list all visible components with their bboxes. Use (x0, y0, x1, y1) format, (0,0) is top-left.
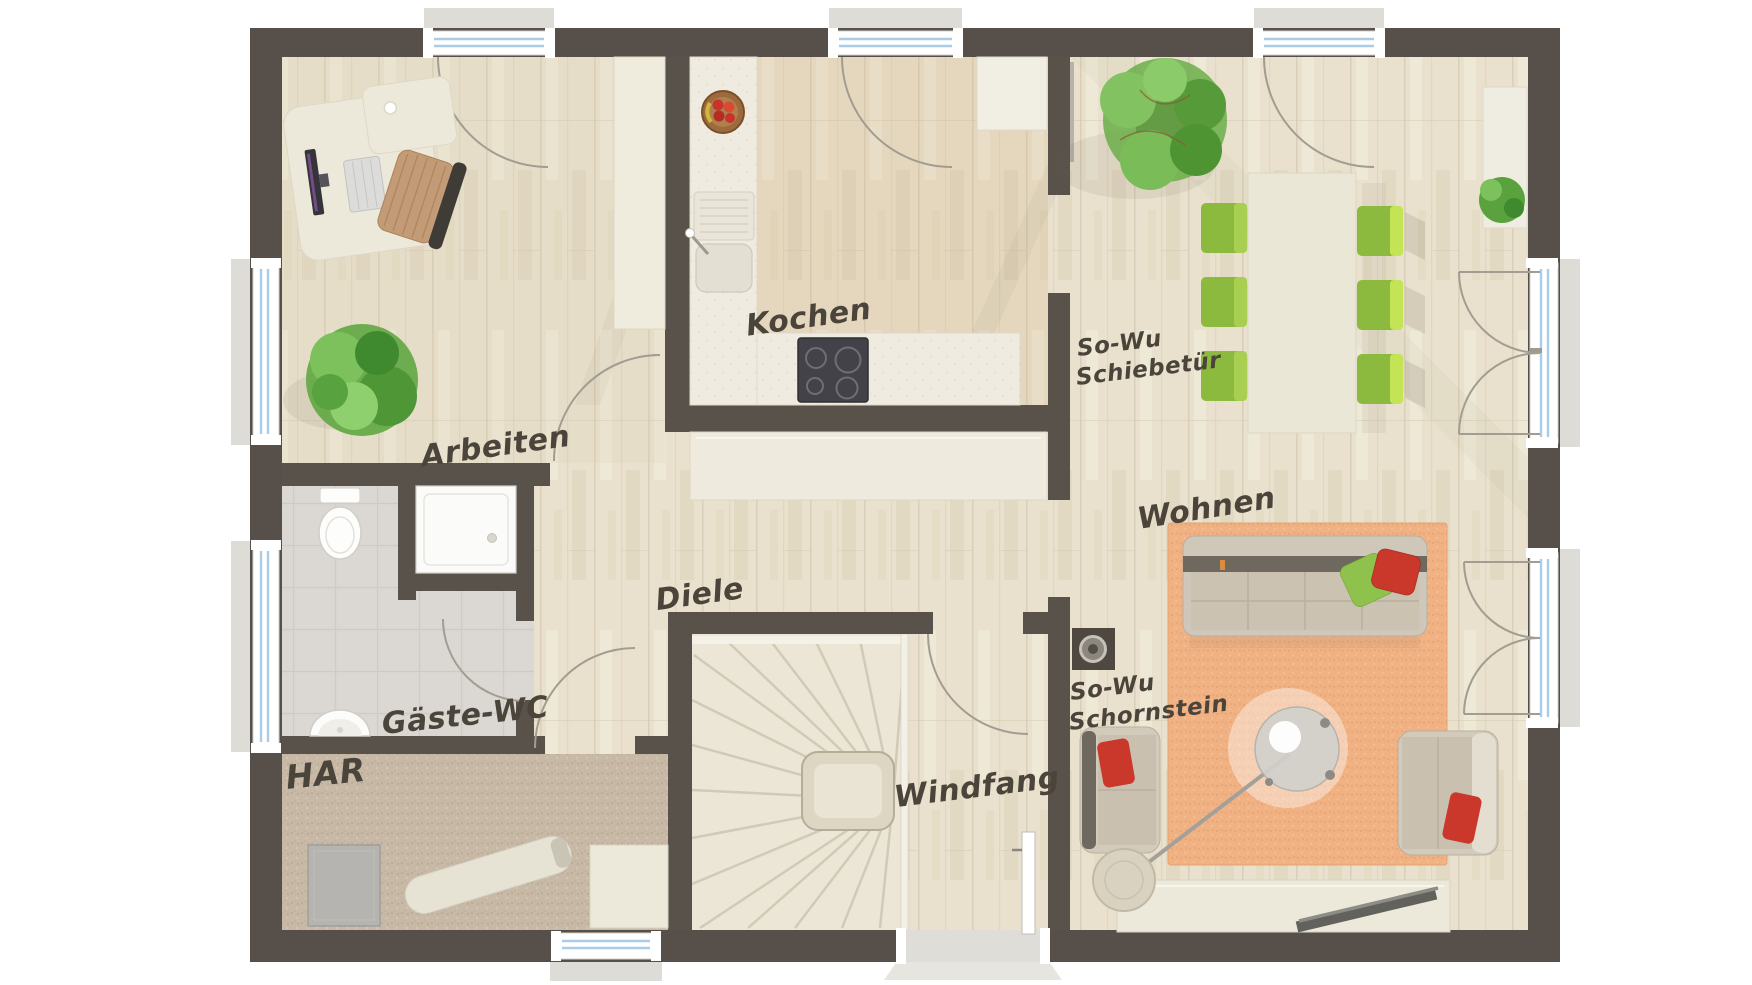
window-office-west (251, 258, 281, 445)
wall-stair-west (668, 634, 692, 930)
wall-shower-south (416, 573, 534, 591)
sofa (1183, 536, 1427, 636)
wall-shower-west (398, 463, 416, 600)
floor-plan-page: Arbeiten Kochen Diele Gäste-WC HAR Windf… (0, 0, 1752, 985)
entrance-step (884, 960, 1062, 980)
tv-lowboard (1117, 880, 1450, 932)
dining-chairs-right (1357, 206, 1425, 408)
office-wardrobe (614, 57, 665, 329)
kitchen-tall-cabinet (977, 57, 1047, 130)
lamp-base (1093, 849, 1155, 911)
shower (416, 486, 516, 573)
window-dining-north (1253, 28, 1385, 58)
entrance-door-leaf (1022, 832, 1035, 934)
fruit-bowl (702, 91, 744, 133)
staircase (692, 634, 908, 930)
har-appliance (308, 845, 380, 926)
window-har-south (551, 931, 661, 961)
armchair-right (1398, 731, 1498, 855)
wall-exterior-east (1528, 28, 1560, 962)
wall-sideboard (1479, 87, 1527, 228)
kitchen-counter-south (757, 333, 1020, 405)
window-kitchen-north (828, 28, 963, 58)
window-office-north (423, 28, 555, 58)
chimney (1072, 628, 1115, 670)
stair-landing-edge (692, 636, 905, 644)
floor-plan-drawing: Arbeiten Kochen Diele Gäste-WC HAR Windf… (0, 0, 1752, 985)
label-har: HAR (284, 750, 368, 797)
wall-wc-east-upper (516, 463, 534, 621)
cooktop (798, 338, 868, 402)
wall-kitchen-south (665, 405, 1070, 432)
toilet (319, 488, 361, 559)
har-cabinet (590, 845, 668, 928)
office-plant (306, 324, 418, 436)
window-wc-west (251, 540, 281, 753)
armchair-left (1080, 727, 1160, 853)
wall-windfang-stub (1023, 612, 1048, 634)
dining-table (1248, 173, 1356, 433)
wall-divider-mid (1048, 293, 1070, 500)
hall-sideboard (690, 432, 1047, 500)
wall-exterior-west (250, 28, 282, 962)
wall-stair-north (668, 612, 933, 634)
